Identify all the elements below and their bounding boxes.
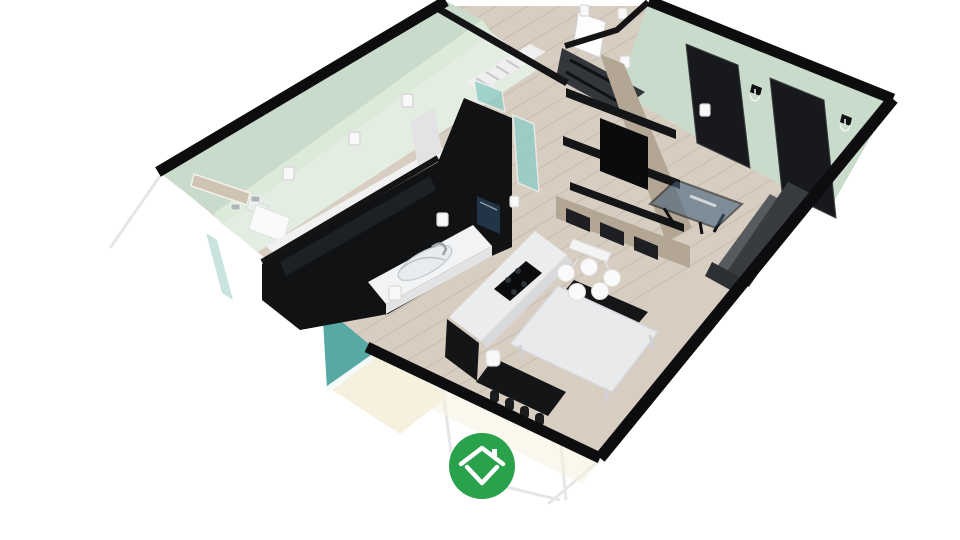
wall-lamp bbox=[402, 94, 413, 107]
wall-lamp bbox=[700, 104, 710, 116]
white-stool bbox=[486, 350, 500, 366]
burner bbox=[511, 289, 517, 295]
sink-fixture bbox=[231, 204, 240, 210]
counter-canister bbox=[510, 196, 519, 207]
pendant-globe bbox=[592, 283, 609, 300]
burner bbox=[515, 268, 521, 274]
wall-lamp bbox=[618, 8, 627, 19]
pendant-globe bbox=[569, 284, 586, 301]
floorplan-3d-viewport bbox=[0, 0, 960, 540]
burner bbox=[505, 277, 511, 283]
sink-fixture bbox=[251, 196, 260, 202]
burner bbox=[521, 281, 527, 287]
wall-lamp bbox=[349, 132, 360, 145]
floorplanner-logo[interactable] bbox=[449, 433, 515, 499]
logo-circle[interactable] bbox=[449, 433, 515, 499]
wall-lamp bbox=[283, 167, 294, 180]
pendant-globe bbox=[604, 270, 621, 287]
logo-chimney-icon bbox=[492, 449, 497, 456]
floorplan-3d-scene bbox=[0, 0, 960, 540]
pendant-globe bbox=[558, 265, 575, 282]
pendant-globe bbox=[581, 259, 598, 276]
wall-lamp bbox=[580, 5, 589, 16]
counter-canister bbox=[389, 286, 401, 300]
counter-canister bbox=[437, 213, 448, 226]
